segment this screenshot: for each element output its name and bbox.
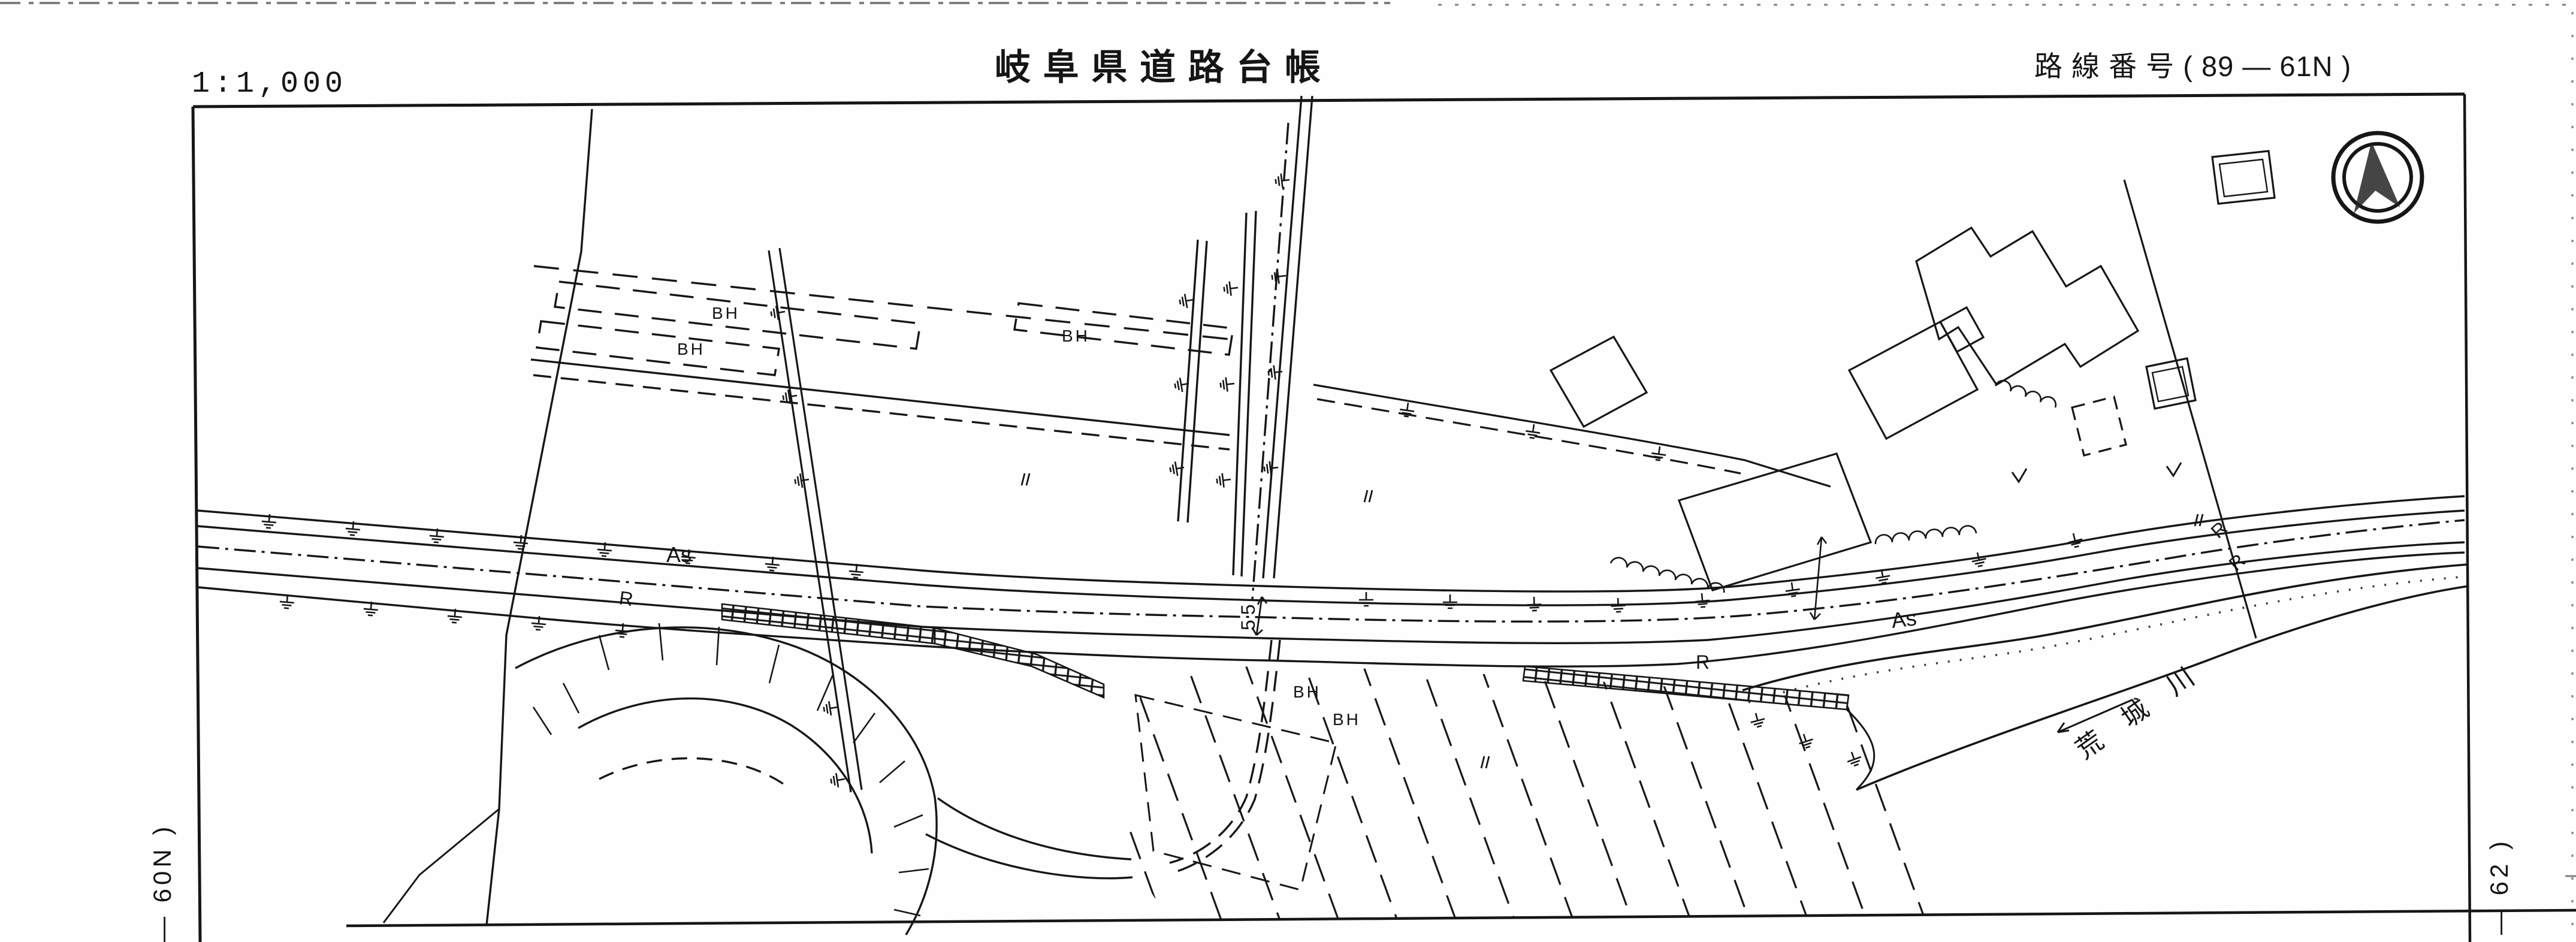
label-bh-1: BH — [712, 304, 740, 322]
label-bh-2: BH — [677, 340, 705, 358]
label-bh-5: BH — [1333, 710, 1361, 729]
ditto-mark — [1364, 490, 1372, 502]
label-r-ne-lower: R — [2225, 549, 2249, 575]
cross-road-centerline — [1252, 123, 1288, 599]
north-arrow-compass-icon — [2333, 133, 2422, 222]
paddy-field-area — [1128, 664, 1935, 920]
building — [2146, 358, 2196, 409]
label-bh-3: BH — [1062, 327, 1090, 345]
left-minor-road — [769, 248, 862, 792]
label-r-mid: R — [1696, 651, 1710, 673]
building — [1849, 322, 1977, 439]
content-left-boundary — [487, 109, 592, 925]
adjacent-sheet-left: — 60N ) — [148, 823, 176, 942]
building — [1940, 307, 1983, 352]
road-ledger-sheet: 1:1,000 岐 阜 県 道 路 台 帳 路 線 番 号 ( 89 — 61N… — [0, 0, 2576, 942]
page-title: 岐 阜 県 道 路 台 帳 — [995, 47, 1322, 87]
ditto-mark — [1022, 473, 1029, 485]
river-stipple — [1748, 576, 2468, 702]
map-canvas: 1:1,000 岐 阜 県 道 路 台 帳 路 線 番 号 ( 89 — 61N… — [0, 0, 2576, 942]
vegetation-v-mark — [2167, 463, 2181, 476]
cross-road-east-edge — [1274, 96, 1312, 578]
building — [1679, 454, 1871, 590]
frame-left — [193, 107, 200, 942]
label-bh-4: BH — [1293, 683, 1321, 701]
building — [1551, 337, 1647, 427]
vegetation-v-mark — [2012, 469, 2027, 482]
road-south-curb — [198, 542, 2465, 643]
label-station-55: 55 — [1237, 599, 1259, 630]
hedge-scallops — [1995, 381, 2056, 407]
frame-top — [193, 94, 2465, 107]
route-number-label: 路 線 番 号 ( 89 — 61N ) — [2034, 50, 2351, 82]
guardrail-strip-left-lower — [935, 628, 1104, 698]
adjacent-sheet-right: — 62 ) — [2485, 838, 2513, 935]
building-dashed — [2072, 397, 2126, 455]
ne-boundary — [1313, 385, 1831, 487]
building — [1916, 228, 2138, 385]
road-centerline — [198, 520, 2465, 621]
ditto-mark — [2195, 514, 2203, 526]
label-as-right: As — [1890, 605, 1918, 633]
road-north-edge — [198, 496, 2465, 591]
hill-slope — [383, 623, 1133, 935]
paddy-field — [1128, 664, 1935, 920]
hedge-scallops — [1876, 526, 1976, 544]
label-r-left: R — [618, 587, 635, 610]
label-as-left: As — [666, 542, 691, 567]
label-river-name: 荒 城 川 — [2071, 656, 2209, 765]
frame-right — [2465, 94, 2470, 942]
road-south-edge — [198, 552, 2465, 666]
scale-label: 1:1,000 — [192, 67, 347, 101]
slope-hatching — [533, 623, 929, 916]
